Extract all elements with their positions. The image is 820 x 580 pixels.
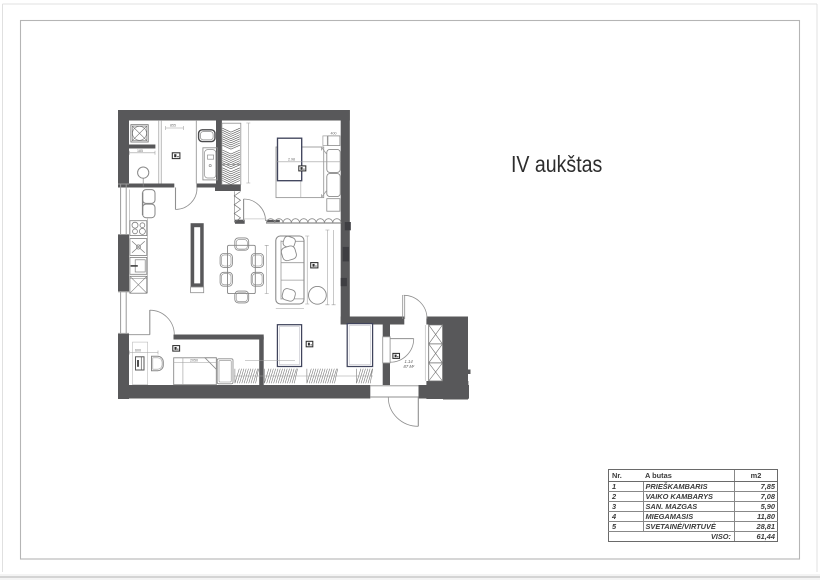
svg-text:185: 185: [137, 149, 143, 153]
svg-text:2.98: 2.98: [288, 158, 295, 162]
svg-text:87 M²: 87 M²: [404, 364, 415, 369]
svg-text:2050: 2050: [190, 358, 198, 362]
svg-text:855: 855: [170, 124, 176, 128]
svg-text:400: 400: [331, 132, 337, 136]
svg-text:600: 600: [135, 348, 141, 352]
